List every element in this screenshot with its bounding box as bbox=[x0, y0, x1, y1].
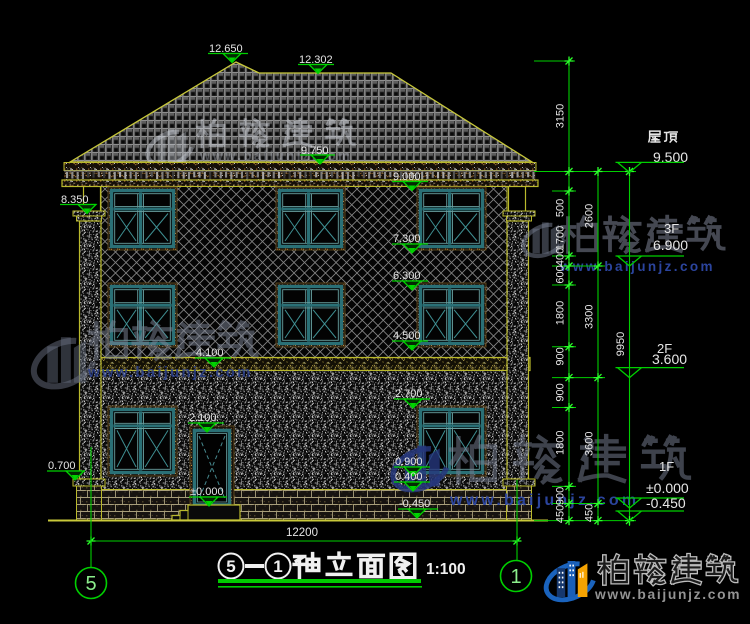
svg-text:9950: 9950 bbox=[615, 332, 627, 356]
svg-text:±0.000: ±0.000 bbox=[190, 486, 224, 498]
svg-text:1800: 1800 bbox=[555, 301, 567, 325]
svg-text:400: 400 bbox=[555, 248, 567, 266]
svg-text:0.900: 0.900 bbox=[395, 456, 423, 468]
svg-text:1: 1 bbox=[510, 566, 521, 588]
svg-text:5: 5 bbox=[85, 573, 96, 595]
svg-text:450: 450 bbox=[555, 505, 567, 523]
svg-text:7.300: 7.300 bbox=[393, 233, 421, 245]
svg-text:2600: 2600 bbox=[584, 204, 596, 228]
svg-text:www.baijunjz.com: www.baijunjz.com bbox=[594, 587, 741, 602]
svg-text:500: 500 bbox=[555, 199, 567, 217]
svg-text:600: 600 bbox=[555, 265, 567, 283]
svg-text:3.600: 3.600 bbox=[652, 351, 687, 367]
svg-text:5: 5 bbox=[226, 557, 235, 576]
svg-text:450: 450 bbox=[584, 504, 596, 522]
svg-text:3F: 3F bbox=[664, 221, 679, 236]
svg-text:1:100: 1:100 bbox=[426, 561, 466, 578]
svg-text:2.700: 2.700 bbox=[395, 388, 423, 400]
svg-text:2.100: 2.100 bbox=[189, 412, 217, 424]
svg-text:6.300: 6.300 bbox=[393, 270, 421, 282]
svg-text:6.900: 6.900 bbox=[653, 237, 688, 253]
svg-text:1700: 1700 bbox=[555, 226, 567, 250]
svg-text:-0.450: -0.450 bbox=[399, 498, 430, 510]
svg-text:3600: 3600 bbox=[584, 432, 596, 456]
svg-text:3300: 3300 bbox=[584, 305, 596, 329]
svg-text:0.400: 0.400 bbox=[395, 471, 423, 483]
svg-text:900: 900 bbox=[555, 487, 567, 505]
svg-text:900: 900 bbox=[555, 383, 567, 401]
svg-text:-0.450: -0.450 bbox=[646, 495, 686, 511]
svg-text:1: 1 bbox=[273, 557, 282, 576]
svg-text:900: 900 bbox=[555, 347, 567, 365]
svg-text:12200: 12200 bbox=[286, 527, 318, 539]
svg-text:www.baijunjz.com: www.baijunjz.com bbox=[87, 364, 253, 381]
svg-text:4.100: 4.100 bbox=[196, 347, 224, 359]
svg-text:±0.000: ±0.000 bbox=[646, 480, 689, 496]
svg-text:1F: 1F bbox=[659, 459, 674, 474]
svg-text:3150: 3150 bbox=[555, 104, 567, 128]
svg-text:4.500: 4.500 bbox=[393, 330, 421, 342]
svg-text:www.baijunjz.com: www.baijunjz.com bbox=[449, 492, 639, 509]
svg-text:1800: 1800 bbox=[555, 431, 567, 455]
svg-text:0.700: 0.700 bbox=[48, 460, 76, 472]
